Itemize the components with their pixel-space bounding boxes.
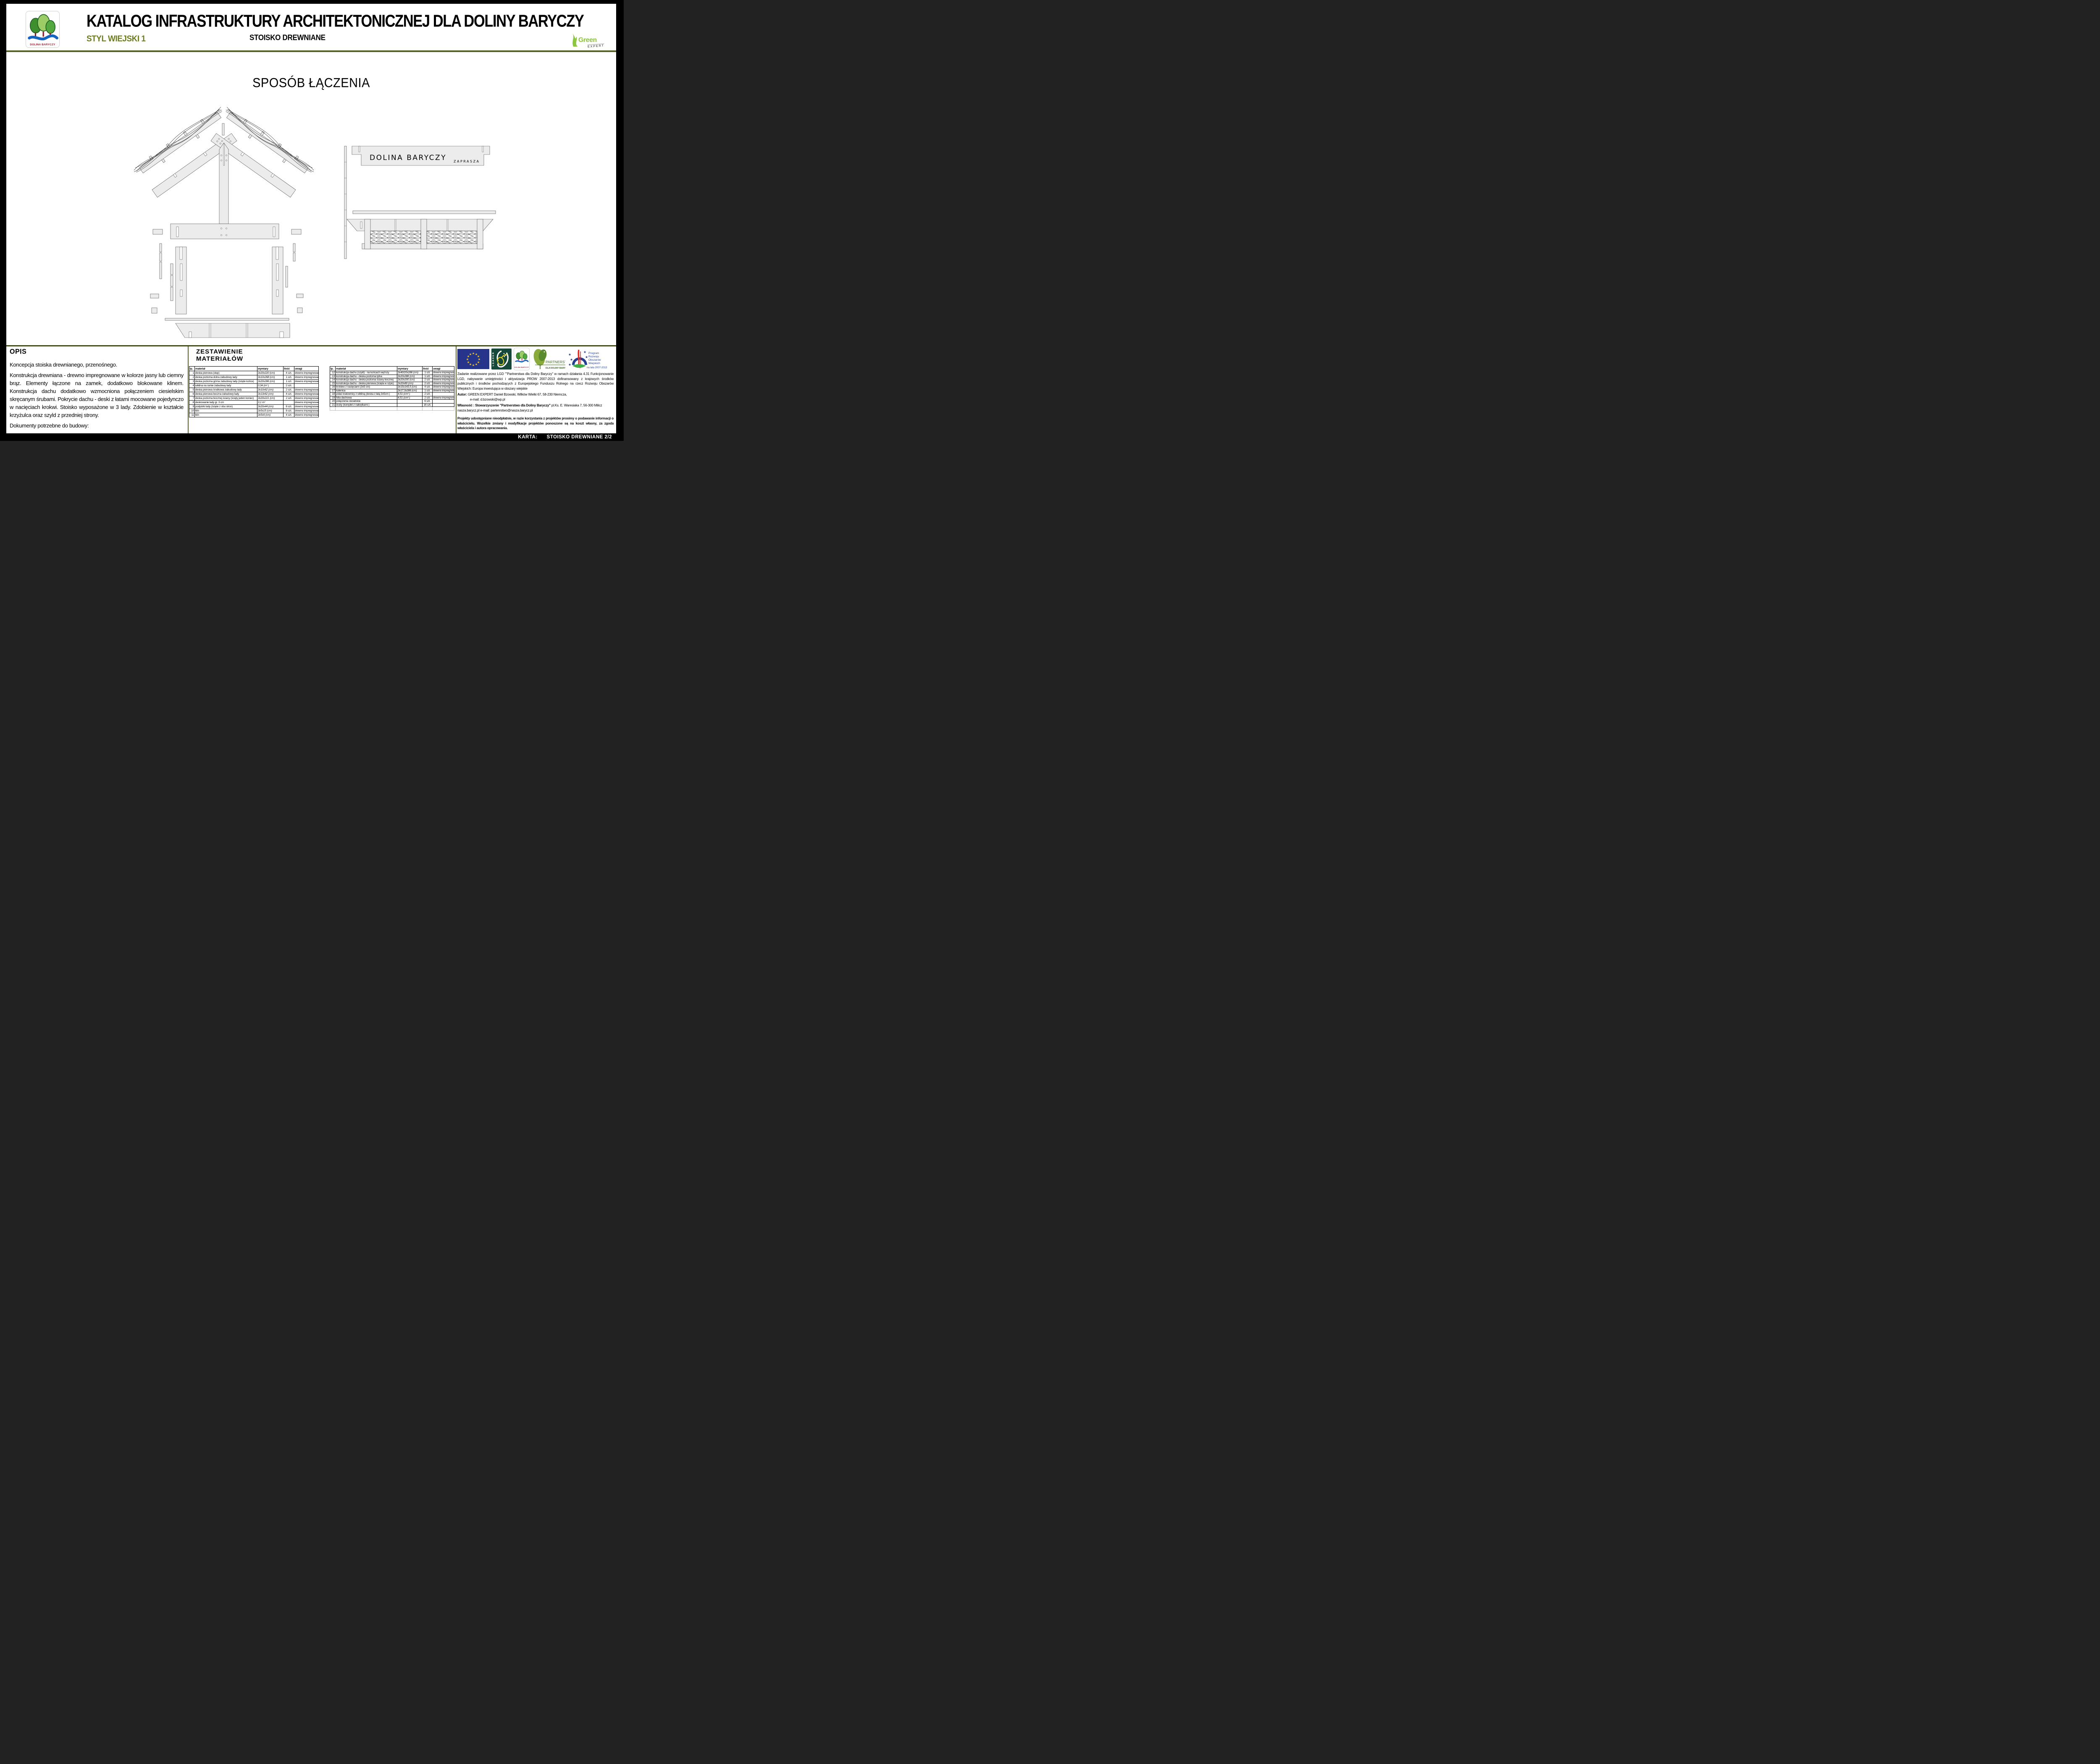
table-cell: konstrukcja dachu - deska pozioma ściany… bbox=[336, 378, 397, 382]
table-cell: drewno impregnowane bbox=[433, 371, 454, 375]
table-cell: 3x20x286 (cm) bbox=[397, 375, 423, 378]
table-cell: 8 szt. bbox=[283, 405, 294, 409]
table-header-row: lp.materiałwymiaryilośćuwagi bbox=[330, 367, 454, 371]
page-title: KATALOG INFRASTRUKTURY ARCHITEKTONICZNEJ… bbox=[87, 11, 591, 31]
table-cell: 2 szt. bbox=[283, 384, 294, 388]
center-post bbox=[219, 143, 228, 224]
svg-text:★: ★ bbox=[466, 358, 469, 361]
table-row: 6deska pionowa boczna zabudowy lady3x13x… bbox=[189, 392, 319, 396]
table-cell: folia dachowa bbox=[336, 396, 397, 400]
table-cell: 3x15x143,5 (cm) bbox=[397, 385, 423, 389]
svg-text:Rozwoju: Rozwoju bbox=[588, 355, 599, 358]
table-cell: 1 szt. bbox=[283, 380, 294, 384]
table-cell: śruby (komplet z nakrętkami ) bbox=[336, 403, 397, 407]
table-cell: 3x20x200 (cm) bbox=[397, 378, 423, 382]
brand-expert: EXPERT bbox=[588, 44, 604, 49]
eu-flag-icon: ★★★ ★★★ ★★★ ★★★ bbox=[457, 349, 489, 369]
table-cell: drewno impregnowane bbox=[433, 389, 454, 393]
table-cell: 15 bbox=[330, 382, 336, 385]
column-header: materiał bbox=[336, 367, 397, 371]
table-cell: 20 bbox=[330, 400, 336, 404]
table-cell: 3x10x268 (cm) bbox=[257, 375, 283, 380]
table-cell bbox=[294, 384, 319, 388]
table-cell: 4 bbox=[189, 384, 195, 388]
table-header-row: lp.materiałwymiaryilośćuwagi bbox=[189, 367, 319, 371]
table-cell: deskowanie lady gr. 3 cm bbox=[195, 401, 257, 405]
table-cell: 2 szt. bbox=[283, 388, 294, 392]
drawing-area: SPOSÓB ŁĄCZENIA bbox=[6, 52, 616, 345]
table-cell: 2 szt. bbox=[423, 378, 433, 382]
table-cell: 3x20x44 (cm) bbox=[257, 405, 283, 409]
counter-body bbox=[347, 219, 493, 249]
footer-section: ★★★ ★★★ ★★★ ★★★ LEADER bbox=[456, 346, 616, 433]
table-cell: 3x40/20x286 (cm) bbox=[397, 371, 423, 375]
svg-text:★: ★ bbox=[478, 358, 480, 361]
table-cell: 2 szt. bbox=[283, 396, 294, 401]
table-cell bbox=[423, 407, 433, 411]
table-cell: 6 bbox=[189, 392, 195, 396]
table-cell: 2 szt. bbox=[423, 393, 433, 396]
leader-logo: LEADER bbox=[491, 349, 512, 370]
sign-board: DOLINA BARYCZY ZAPRASZA bbox=[352, 146, 490, 165]
table-cell: 10 bbox=[189, 409, 195, 413]
table-cell: deska pionowa środkowa zabudowy lady bbox=[195, 388, 257, 392]
svg-text:Obszarów: Obszarów bbox=[588, 359, 601, 362]
bottom-panel: OPIS Koncepcja stoiska drewnianego, prze… bbox=[6, 345, 616, 433]
table-cell: klin bbox=[195, 413, 257, 417]
table-row: 4wiklina na ramie zabudowy lady0,34 (m² … bbox=[189, 384, 319, 388]
wedge-block bbox=[291, 229, 301, 234]
author-email: e-mail: d.bzowski@wp.pl bbox=[470, 398, 505, 401]
post-right bbox=[272, 247, 283, 314]
table-cell: drewno impregnowane bbox=[294, 401, 319, 405]
table-cell: 3x20x286 (cm) bbox=[257, 380, 283, 384]
table-row: 11klin3x5x9 (cm)4 szt.drewno impregnowan… bbox=[189, 413, 319, 417]
table-cell: 16 szt. bbox=[423, 403, 433, 407]
opis-paragraph: Dokumenty potrzebne do budowy: bbox=[10, 422, 184, 430]
table-cell bbox=[336, 407, 397, 411]
table-cell bbox=[433, 403, 454, 407]
karta-label: KARTA: bbox=[518, 435, 537, 440]
table-cell: 12 bbox=[330, 371, 336, 375]
svg-text:★: ★ bbox=[585, 355, 588, 359]
table-cell: 4 szt. bbox=[283, 413, 294, 417]
table-cell: drewno impregnowane bbox=[433, 382, 454, 385]
table-cell: drewno impregnowane bbox=[294, 371, 319, 375]
table-cell bbox=[397, 400, 423, 404]
table-cell: drewno impregnowane bbox=[433, 385, 454, 389]
dolina-baryczy-small-logo: DOLINA BARYCZY bbox=[514, 348, 530, 370]
svg-text:★: ★ bbox=[568, 353, 571, 356]
table-cell: 2 bbox=[189, 375, 195, 380]
svg-text:★: ★ bbox=[477, 355, 480, 358]
table-cell: 2 szt. bbox=[423, 382, 433, 385]
svg-text:★: ★ bbox=[472, 352, 475, 355]
table-cell bbox=[397, 407, 423, 411]
opis-paragraph: Koncepcja stoiska drewnianego, przenośne… bbox=[10, 361, 184, 369]
catalog-page: DOLINA BARYCZY KATALOG INFRASTRUKTURY AR… bbox=[0, 0, 624, 441]
table-row: 20połączenia ciesielskie6 szt. bbox=[330, 400, 454, 404]
table-row: 7deska pozioma bocznej ściany (ścięty je… bbox=[189, 396, 319, 401]
opis-heading: OPIS bbox=[10, 348, 184, 356]
table-cell: 3x20x220 (cm) bbox=[257, 371, 283, 375]
svg-text:PARTNERSTWO: PARTNERSTWO bbox=[546, 360, 565, 364]
table-cell: 8 bbox=[189, 401, 195, 405]
column-header: uwagi bbox=[433, 367, 454, 371]
table-cell: podpórki lady (ścięte z obu stron) bbox=[195, 405, 257, 409]
table-row: 3deska pozioma górna zabudowy lady (ścię… bbox=[189, 380, 319, 384]
table-cell: 9 bbox=[189, 405, 195, 409]
counter-top-board bbox=[353, 211, 496, 214]
table-cell: drewno impregnowane bbox=[433, 396, 454, 400]
table-row: 12konstrukcja dachu (szyld) - na końcach… bbox=[330, 371, 454, 375]
table-cell: 1 szt. bbox=[283, 375, 294, 380]
materials-heading: ZESTAWIENIE MATERIAŁÓW bbox=[196, 348, 243, 362]
table-cell: 4 szt. bbox=[283, 392, 294, 396]
column-header: wymiary bbox=[397, 367, 423, 371]
opis-paragraph: Konstrukcja drewniana - drewno impregnow… bbox=[10, 371, 184, 419]
grass-flame-icon bbox=[569, 33, 579, 47]
table-cell: drewno impregnowane bbox=[294, 388, 319, 392]
disclaimer: Projekty udostępniane nieodpłatnie, w ra… bbox=[457, 416, 614, 431]
table-cell: połać kratownicy z wikliną (deska z łatą… bbox=[336, 393, 397, 396]
table-cell: drewno impregnowane bbox=[433, 375, 454, 378]
counter-front-drawing: DOLINA BARYCZY ZAPRASZA bbox=[344, 145, 503, 286]
column-header: lp. bbox=[189, 367, 195, 371]
table-cell: drewno impregnowane bbox=[294, 392, 319, 396]
table-row: 19folia dachowa4,51 (cm² )2 szt.drewno i… bbox=[330, 396, 454, 400]
trees-wave-icon bbox=[514, 348, 529, 364]
table-cell: 8 szt. bbox=[283, 409, 294, 413]
table-cell: kalenica bbox=[336, 389, 397, 393]
table-cell: 4,51 (cm² ) bbox=[397, 393, 423, 396]
wicker-panel bbox=[370, 231, 421, 244]
svg-text:★: ★ bbox=[467, 361, 470, 364]
table-cell: deska pozioma górna zabudowy lady (ścięt… bbox=[195, 380, 257, 384]
table-row: 5deska pionowa środkowa zabudowy lady3x1… bbox=[189, 388, 319, 392]
table-cell: 3x20x221 (cm) bbox=[257, 396, 283, 401]
table-cell: 19 bbox=[330, 396, 336, 400]
table-cell bbox=[433, 400, 454, 404]
wedge-block bbox=[153, 229, 163, 234]
table-cell: 7 bbox=[189, 396, 195, 401]
style-label: STYL WIEJSKI 1 bbox=[87, 34, 145, 44]
table-cell: 3x5x9 (cm) bbox=[257, 413, 283, 417]
table-cell: krokiew z nacięciami (3x5 cm) bbox=[336, 385, 397, 389]
sign-subtext: ZAPRASZA bbox=[454, 160, 480, 163]
materials-table-right: lp.materiałwymiaryilośćuwagi 12konstrukc… bbox=[330, 366, 454, 411]
table-row bbox=[330, 407, 454, 411]
table-cell: 0,34 (m² ) bbox=[257, 384, 283, 388]
table-cell: 3x13x62 (cm) bbox=[257, 392, 283, 396]
table-cell: 14 bbox=[330, 378, 336, 382]
table-cell: 1 bbox=[189, 371, 195, 375]
svg-text:Program: Program bbox=[588, 352, 599, 355]
description-section: OPIS Koncepcja stoiska drewnianego, prze… bbox=[6, 346, 188, 433]
table-cell: 1 szt. bbox=[423, 375, 433, 378]
footer-logos: ★★★ ★★★ ★★★ ★★★ LEADER bbox=[457, 348, 614, 370]
table-cell: 3x17,3x286 (cm) bbox=[397, 389, 423, 393]
svg-text:na lata 2007-2013: na lata 2007-2013 bbox=[587, 367, 607, 369]
table-row: 17kalenica3x17,3x286 (cm)1 szt.drewno im… bbox=[330, 389, 454, 393]
svg-text:Wiejskich: Wiejskich bbox=[588, 362, 600, 365]
funding-note: Zadanie realizowane przez LGD ""Partners… bbox=[457, 372, 614, 391]
table-row: 14konstrukcja dachu - deska pozioma ścia… bbox=[330, 378, 454, 382]
svg-text:★: ★ bbox=[570, 358, 573, 362]
table-cell: 3,1 m² bbox=[257, 401, 283, 405]
table-cell: drewno impregnowane bbox=[294, 413, 319, 417]
brand-green: Green bbox=[578, 37, 597, 44]
author-line: Autor: GREEN EXPERT Daniel Bzowski, Wilk… bbox=[457, 392, 614, 402]
table-cell: drewno impregnowane bbox=[294, 380, 319, 384]
svg-text:DLA DOLINY BARYCZY: DLA DOLINY BARYCZY bbox=[546, 367, 565, 370]
ridge-piece bbox=[222, 123, 224, 135]
sign-text: DOLINA BARYCZY bbox=[370, 154, 446, 162]
table-cell: drewno impregnowane bbox=[294, 409, 319, 413]
table-cell: konstrukcja dachu (szyld) - na końcach w… bbox=[336, 371, 397, 375]
column-header: wymiary bbox=[257, 367, 283, 371]
table-cell: 21 bbox=[330, 403, 336, 407]
main-beam bbox=[171, 224, 279, 239]
exploded-structure-drawing bbox=[134, 100, 321, 341]
table-cell: 3x5x15 (cm) bbox=[257, 409, 283, 413]
table-cell bbox=[433, 407, 454, 411]
green-expert-logo: Green EXPERT bbox=[569, 33, 615, 50]
dolina-baryczy-logo: DOLINA BARYCZY bbox=[26, 11, 60, 48]
svg-text:★: ★ bbox=[475, 363, 478, 366]
svg-text:★: ★ bbox=[568, 363, 571, 367]
table-row: 15konstrukcja dachu - deska pionowa (ści… bbox=[330, 382, 454, 385]
table-cell: 1 szt. bbox=[423, 389, 433, 393]
karta-value: STOISKO DREWNIANE 2/2 bbox=[547, 435, 612, 440]
table-cell: drewno impregnowane bbox=[294, 405, 319, 409]
svg-text:★: ★ bbox=[469, 353, 472, 356]
table-cell: 17 bbox=[330, 389, 336, 393]
materials-table-left: lp.materiałwymiaryilośćuwagi 1deska pion… bbox=[189, 366, 319, 417]
table-row: 2deska pozioma dolna zabudowy lady3x10x2… bbox=[189, 375, 319, 380]
svg-text:★: ★ bbox=[472, 364, 475, 367]
table-row: 16krokiew z nacięciami (3x5 cm)3x15x143,… bbox=[330, 385, 454, 389]
sheet: DOLINA BARYCZY KATALOG INFRASTRUKTURY AR… bbox=[6, 4, 616, 433]
table-cell: drewno impregnowane bbox=[294, 396, 319, 401]
table-cell: połączenia ciesielskie bbox=[336, 400, 397, 404]
table-cell: 3 bbox=[189, 380, 195, 384]
column-header: ilość bbox=[423, 367, 433, 371]
svg-text:★: ★ bbox=[583, 350, 586, 354]
page-subtitle: STOISKO DREWNIANE bbox=[249, 33, 325, 42]
column-header: lp. bbox=[330, 367, 336, 371]
drawing-heading: SPOSÓB ŁĄCZENIA bbox=[6, 76, 616, 91]
table-cell: 4 szt. bbox=[423, 385, 433, 389]
side-post-strip bbox=[344, 146, 346, 259]
table-cell bbox=[330, 407, 336, 411]
materials-section: ZESTAWIENIE MATERIAŁÓW lp.materiałwymiar… bbox=[188, 346, 456, 433]
table-cell: wiklina na ramie zabudowy lady bbox=[195, 384, 257, 388]
table-cell: konstrukcja dachu - deska pionowa (ścięt… bbox=[336, 382, 397, 385]
prow-logo: ★★★ ★★★ Program Rozwoju Obszarów Wiejski… bbox=[567, 348, 612, 370]
table-cell bbox=[433, 393, 454, 396]
table-row: 21śruby (komplet z nakrętkami )16 szt. bbox=[330, 403, 454, 407]
table-cell: 18 bbox=[330, 393, 336, 396]
table-cell: 5 bbox=[189, 388, 195, 392]
table-cell: 6 szt. bbox=[423, 400, 433, 404]
karta-bar: KARTA: STOISKO DREWNIANE 2/2 bbox=[0, 433, 624, 441]
table-row: 8deskowanie lady gr. 3 cm3,1 m²drewno im… bbox=[189, 401, 319, 405]
table-cell: 2 szt. bbox=[423, 396, 433, 400]
table-cell: deska pozioma dolna zabudowy lady bbox=[195, 375, 257, 380]
table-cell: deska pionowa (słup) bbox=[195, 371, 257, 375]
table-cell: drewno impregnowane bbox=[294, 375, 319, 380]
logo-caption: DOLINA BARYCZY bbox=[26, 43, 59, 46]
table-cell: 13 bbox=[330, 375, 336, 378]
wicker-panel bbox=[427, 231, 477, 244]
table-cell: 16 bbox=[330, 385, 336, 389]
table-cell bbox=[397, 403, 423, 407]
table-cell: 3x20x80 (cm) bbox=[397, 382, 423, 385]
table-cell: 3x10x62 (cm) bbox=[257, 388, 283, 392]
table-row: 13konstrukcja dachu - deska pozioma tyln… bbox=[330, 375, 454, 378]
table-cell: 11 bbox=[189, 413, 195, 417]
table-cell: deska pionowa boczna zabudowy lady bbox=[195, 392, 257, 396]
post-left bbox=[176, 247, 186, 314]
column-header: uwagi bbox=[294, 367, 319, 371]
counter-boards bbox=[165, 318, 290, 338]
table-cell: 1 szt. bbox=[423, 371, 433, 375]
owner-line: Własność : Stowarzyszenie "Partnerstwo d… bbox=[457, 403, 614, 413]
table-cell: klin bbox=[195, 409, 257, 413]
table-row: 10klin3x5x15 (cm)8 szt.drewno impregnowa… bbox=[189, 409, 319, 413]
table-row: 18połać kratownicy z wikliną (deska z ła… bbox=[330, 393, 454, 396]
table-row: 1deska pionowa (słup)3x20x220 (cm)4 szt.… bbox=[189, 371, 319, 375]
leader-swoosh-icon bbox=[491, 349, 512, 370]
table-cell bbox=[283, 401, 294, 405]
table-cell: 4 szt. bbox=[283, 371, 294, 375]
table-row: 9podpórki lady (ścięte z obu stron)3x20x… bbox=[189, 405, 319, 409]
table-cell: drewno impregnowane bbox=[433, 378, 454, 382]
table-cell: deska pozioma bocznej ściany (ścięty jed… bbox=[195, 396, 257, 401]
trees-wave-icon bbox=[26, 11, 59, 41]
table-cell: konstrukcja dachu - deska pozioma tylna bbox=[336, 375, 397, 378]
partnerstwo-logo: PARTNERSTWO DLA DOLINY BARYCZY bbox=[532, 348, 565, 370]
table-cell: 4,51 (cm² ) bbox=[397, 396, 423, 400]
column-header: ilość bbox=[283, 367, 294, 371]
column-header: materiał bbox=[195, 367, 257, 371]
